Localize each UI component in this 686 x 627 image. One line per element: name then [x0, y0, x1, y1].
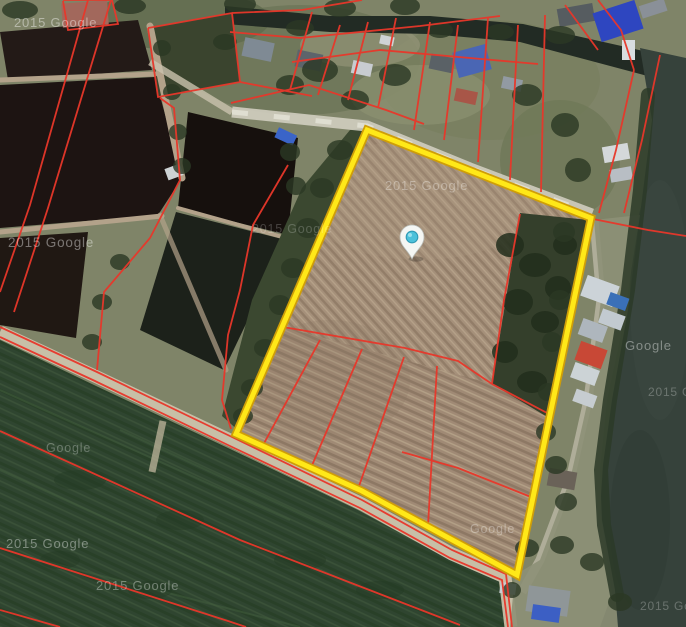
google-watermark: Google	[625, 338, 672, 353]
google-watermark: 2015 Google	[6, 536, 89, 551]
google-watermark: 2015 Google	[385, 178, 468, 193]
google-watermark: 2015 Google	[252, 222, 332, 236]
google-watermark: 2015 Google	[8, 235, 94, 250]
google-watermark: 2015 Google	[14, 15, 97, 30]
satellite-map-view[interactable]: 2015 Google2015 Google2015 Google2015 Go…	[0, 0, 686, 627]
google-watermark: 2015 Google	[640, 599, 686, 613]
google-watermark: Google	[470, 522, 515, 536]
google-watermark: 2015 Goo	[648, 385, 686, 399]
google-watermark: Google	[46, 441, 91, 455]
google-watermark: 2015 Google	[96, 578, 179, 593]
